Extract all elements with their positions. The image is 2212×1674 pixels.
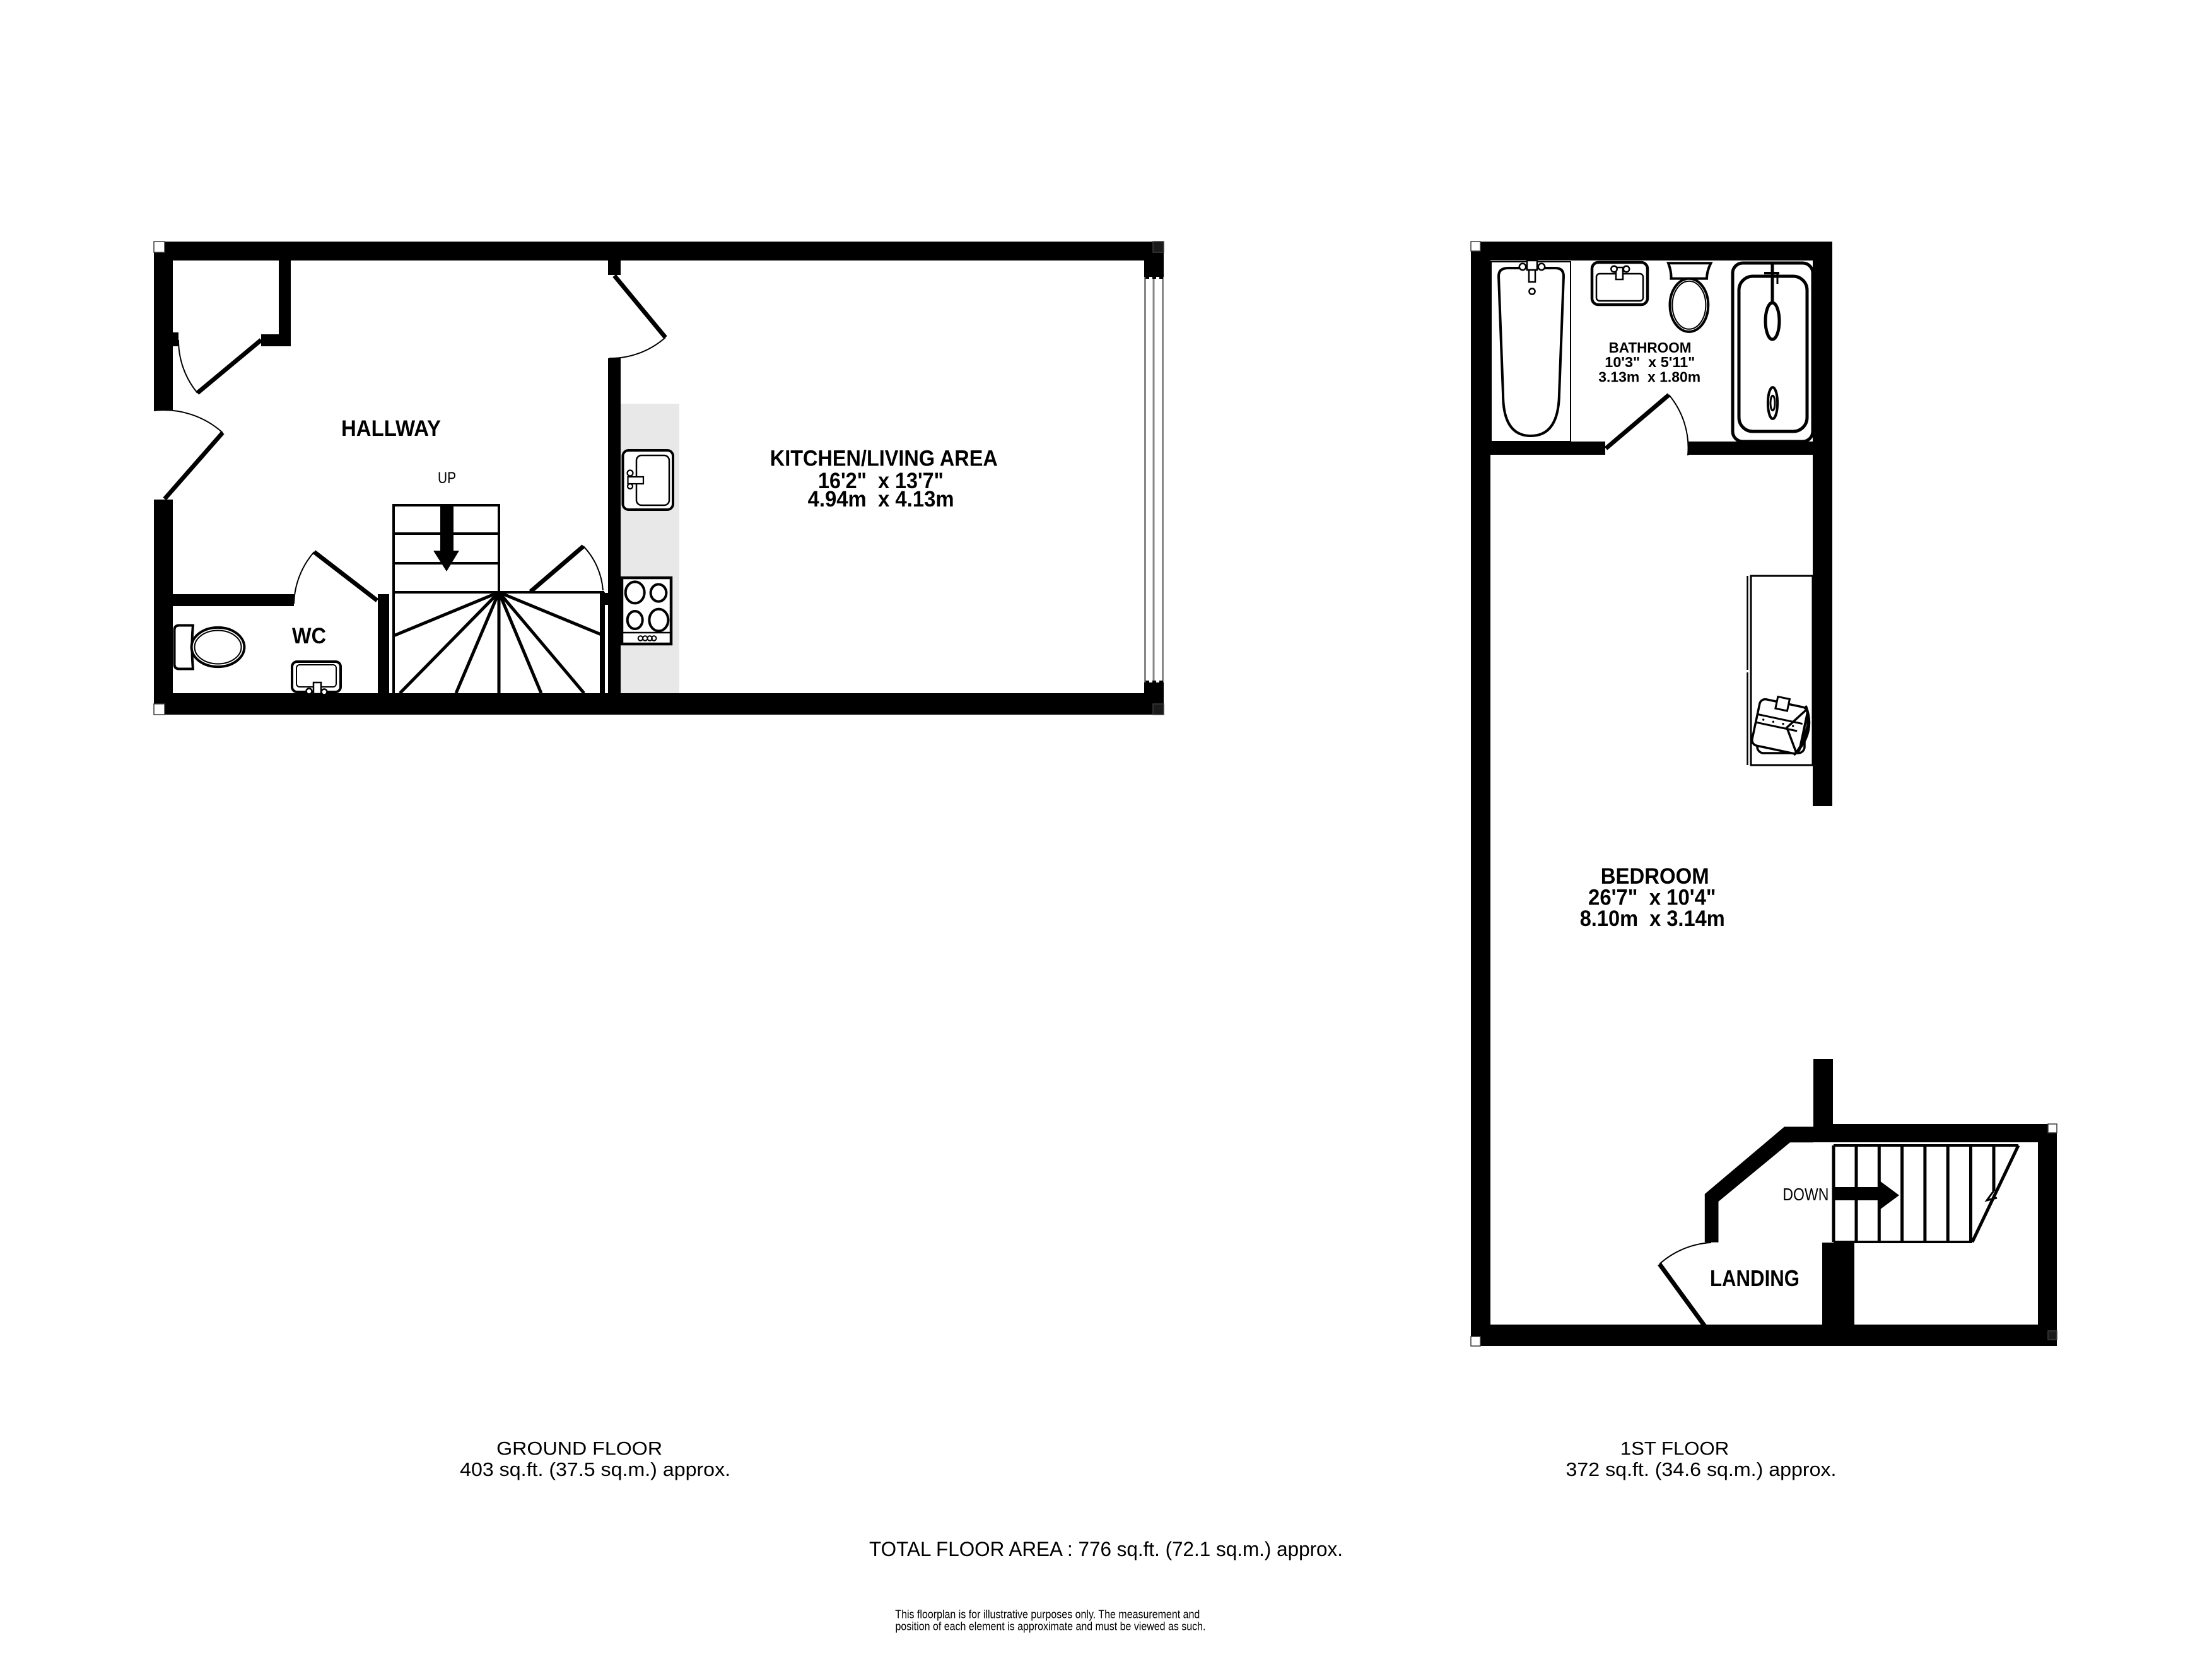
svg-text:UP: UP [438,469,456,487]
svg-text:8.10m x 3.14m: 8.10m x 3.14m [1580,906,1725,931]
svg-text:372 sq.ft. (34.6 sq.m.) approx: 372 sq.ft. (34.6 sq.m.) approx. [1566,1458,1837,1480]
svg-text:10'3" x 5'11": 10'3" x 5'11" [1605,354,1695,370]
svg-text:TOTAL FLOOR AREA : 776 sq.ft.: TOTAL FLOOR AREA : 776 sq.ft. (72.1 sq.m… [869,1538,1343,1560]
svg-text:DOWN: DOWN [1782,1185,1829,1204]
svg-text:403 sq.ft. (37.5 sq.m.) approx: 403 sq.ft. (37.5 sq.m.) approx. [460,1458,730,1480]
svg-text:WC: WC [292,623,326,648]
svg-text:4.94m x 4.13m: 4.94m x 4.13m [808,486,954,512]
svg-text:GROUND FLOOR: GROUND FLOOR [496,1439,662,1460]
svg-text:position of each element is ap: position of each element is approximate … [896,1620,1206,1633]
svg-text:1ST FLOOR: 1ST FLOOR [1620,1439,1729,1460]
svg-text:LANDING: LANDING [1710,1265,1799,1291]
svg-text:KITCHEN/LIVING AREA: KITCHEN/LIVING AREA [770,445,998,471]
svg-text:HALLWAY: HALLWAY [341,416,441,441]
svg-text:This floorplan is for illustra: This floorplan is for illustrative purpo… [895,1608,1200,1621]
svg-text:3.13m x 1.80m: 3.13m x 1.80m [1598,369,1700,385]
